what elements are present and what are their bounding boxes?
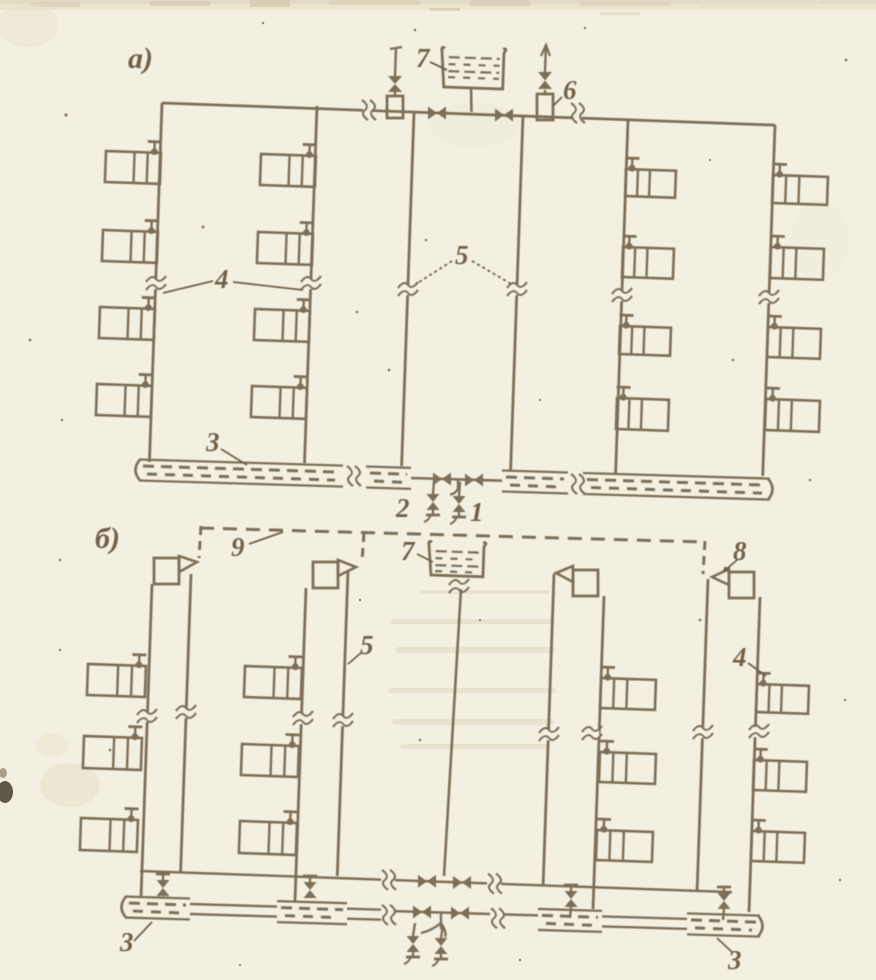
svg-text:4: 4 <box>732 642 747 672</box>
svg-text:5: 5 <box>360 630 374 660</box>
svg-text:б): б) <box>95 522 120 555</box>
svg-text:3: 3 <box>119 927 134 957</box>
svg-text:3: 3 <box>205 427 220 457</box>
svg-text:6: 6 <box>563 75 577 105</box>
svg-text:1: 1 <box>470 497 484 527</box>
svg-text:а): а) <box>128 42 153 75</box>
svg-text:9: 9 <box>231 532 245 562</box>
svg-text:5: 5 <box>455 240 469 270</box>
svg-text:7: 7 <box>416 43 431 73</box>
svg-text:4: 4 <box>214 264 229 294</box>
svg-text:2: 2 <box>395 493 410 523</box>
svg-text:7: 7 <box>401 536 416 566</box>
